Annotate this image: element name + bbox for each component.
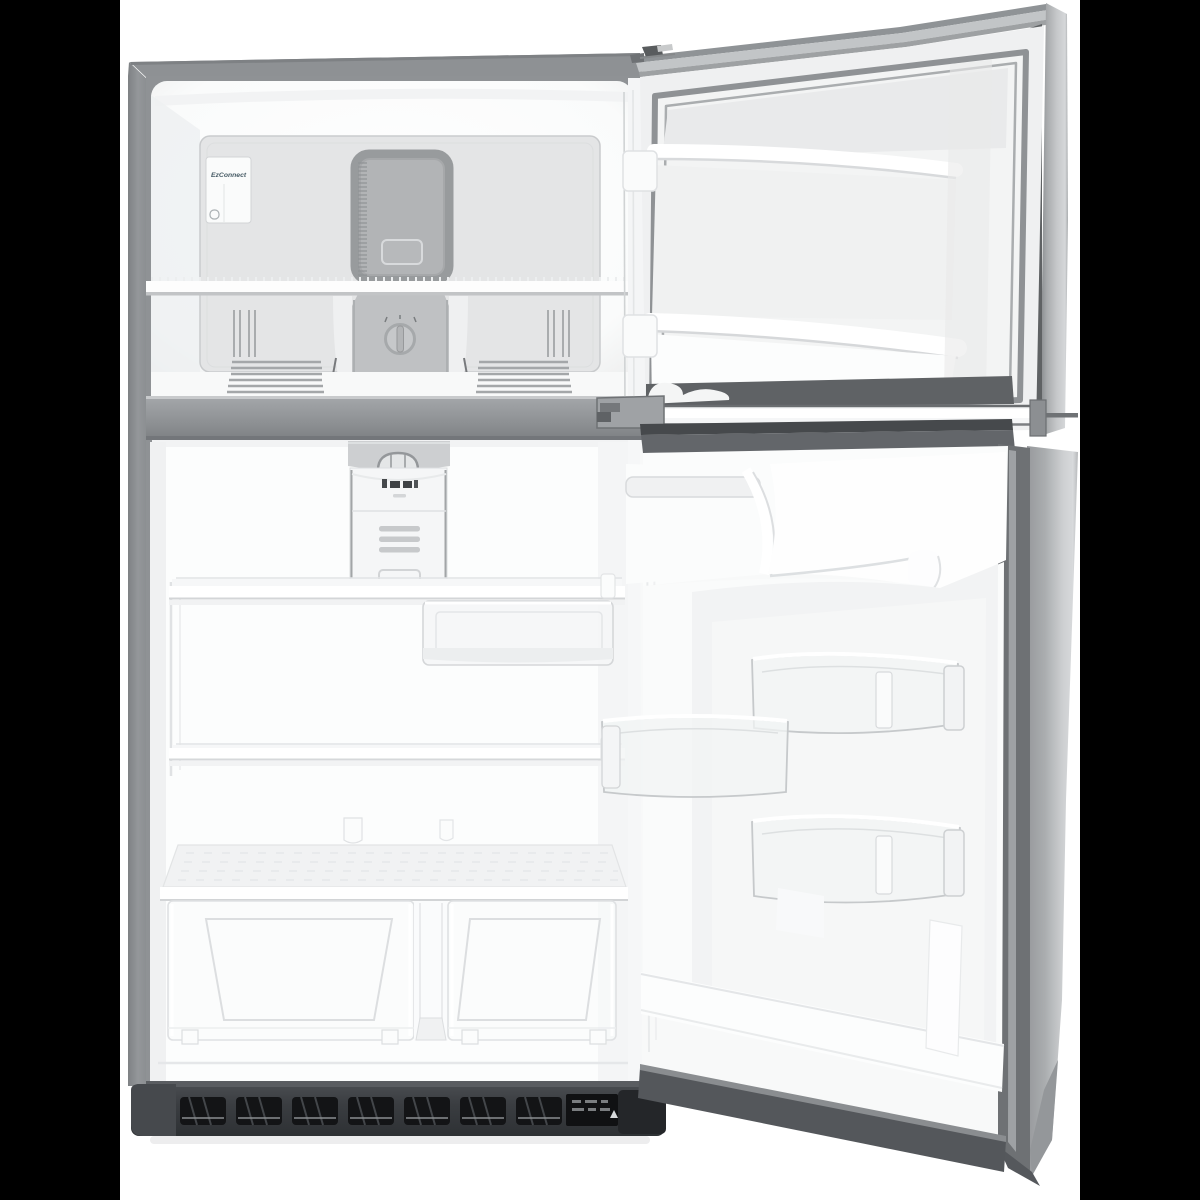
svg-text:EzConnect: EzConnect [211,172,247,179]
